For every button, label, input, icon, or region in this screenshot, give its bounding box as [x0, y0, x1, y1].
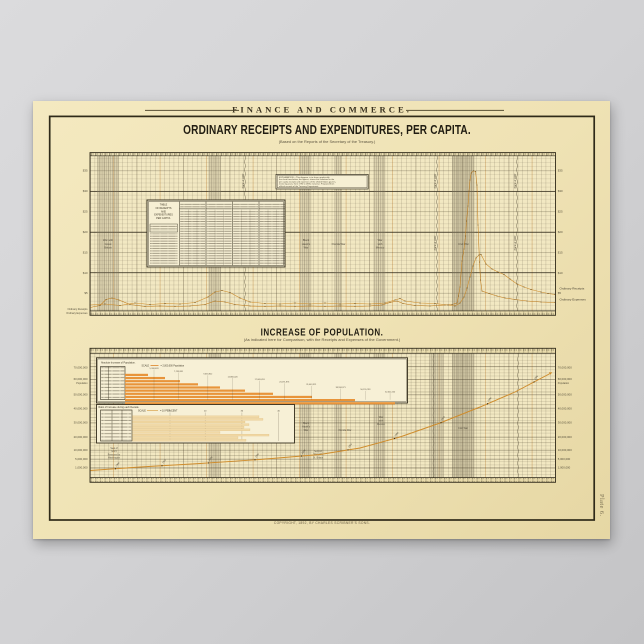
- svg-text:50,000,000: 50,000,000: [558, 393, 572, 397]
- svg-text:10,000,000: 10,000,000: [558, 448, 572, 452]
- svg-text:Panic of 1837: Panic of 1837: [242, 173, 245, 188]
- svg-text:62,622,250: 62,622,250: [385, 391, 396, 393]
- svg-text:Panic of 1837: Panic of 1837: [514, 235, 517, 250]
- svg-text:Panic of 1837: Panic of 1837: [434, 235, 437, 250]
- svg-text:70,000,000: 70,000,000: [558, 366, 572, 370]
- svg-text:38,558,371: 38,558,371: [336, 387, 347, 389]
- svg-text:20,000,000: 20,000,000: [74, 435, 88, 439]
- svg-text:= 2,000,000 Population: = 2,000,000 Population: [161, 364, 185, 367]
- svg-text:Black: Black: [303, 238, 310, 242]
- svg-text:$10: $10: [558, 271, 563, 275]
- svg-text:Second: Second: [314, 451, 323, 453]
- svg-text:PER CAPITA.: PER CAPITA.: [156, 217, 171, 220]
- svg-text:Removed to: Removed to: [108, 453, 121, 456]
- svg-text:(Based on the Reports of the S: (Based on the Reports of the Secretary o…: [279, 139, 376, 144]
- svg-text:$5: $5: [558, 291, 562, 295]
- svg-text:Population: Population: [76, 382, 88, 385]
- svg-text:$10: $10: [83, 271, 88, 275]
- svg-text:Mexico: Mexico: [376, 246, 385, 250]
- svg-text:Florida War: Florida War: [332, 242, 346, 246]
- svg-text:60,000,000: 60,000,000: [74, 377, 88, 381]
- svg-text:$25: $25: [83, 210, 88, 214]
- svg-text:Gov't: Gov't: [111, 450, 117, 453]
- svg-text:20,000,000: 20,000,000: [558, 435, 572, 439]
- svg-text:Ratio of Increase during each: Ratio of Increase during each Decade.: [99, 406, 140, 409]
- svg-text:50,000,000: 50,000,000: [74, 393, 88, 397]
- svg-text:5,308,483: 5,308,483: [150, 368, 160, 370]
- svg-text:$30: $30: [83, 189, 88, 193]
- svg-text:$30: $30: [558, 189, 563, 193]
- svg-text:40,000,000: 40,000,000: [558, 407, 572, 411]
- svg-text:1,000,000: 1,000,000: [558, 466, 571, 470]
- svg-text:50,155,783: 50,155,783: [360, 389, 371, 391]
- svg-text:12,866,020: 12,866,020: [228, 376, 239, 378]
- svg-text:30,000,000: 30,000,000: [558, 421, 572, 425]
- svg-text:Population: Population: [558, 382, 570, 385]
- svg-text:70,000,000: 70,000,000: [74, 366, 88, 370]
- svg-text:Florida War: Florida War: [339, 429, 352, 432]
- svg-text:9,633,822: 9,633,822: [203, 374, 213, 376]
- svg-text:31,443,321: 31,443,321: [306, 384, 317, 386]
- svg-text:(As indicated here for Compari: (As indicated here for Comparison, with …: [244, 337, 401, 342]
- svg-text:COPYRIGHT, 1892, BY CHARLES SC: COPYRIGHT, 1892, BY CHARLES SCRIBNER'S S…: [274, 521, 370, 525]
- svg-text:Panic of 1837: Panic of 1837: [434, 173, 437, 188]
- svg-text:with: with: [378, 242, 383, 246]
- svg-text:Plate 6.: Plate 6.: [598, 494, 605, 517]
- svg-text:Ordinary Receipts: Ordinary Receipts: [67, 308, 88, 311]
- svg-text:FINANCE AND COMMERCE.: FINANCE AND COMMERCE.: [232, 104, 412, 114]
- svg-text:$20: $20: [558, 230, 563, 234]
- svg-text:Ordinary Expenses: Ordinary Expenses: [560, 298, 587, 302]
- svg-text:Civil War: Civil War: [458, 427, 468, 430]
- svg-text:Ordinary Expenses: Ordinary Expenses: [66, 312, 88, 315]
- svg-text:60,000,000: 60,000,000: [558, 377, 572, 381]
- svg-text:$35: $35: [558, 169, 563, 173]
- svg-text:7,239,881: 7,239,881: [174, 371, 184, 373]
- svg-text:ORDINARY RECEIPTS AND EXPENDIT: ORDINARY RECEIPTS AND EXPENDITURES, PER …: [183, 124, 471, 137]
- svg-text:Ordinary Receipts: Ordinary Receipts: [560, 287, 585, 291]
- svg-text:23,191,876: 23,191,876: [279, 382, 290, 384]
- svg-text:SCALE: SCALE: [138, 409, 146, 412]
- svg-text:War: War: [304, 429, 309, 432]
- svg-text:Civil War: Civil War: [458, 242, 469, 246]
- svg-text:Washington: Washington: [108, 457, 121, 460]
- svg-text:War: War: [378, 238, 383, 242]
- svg-text:Great: Great: [105, 242, 112, 246]
- svg-text:Absolute Increase of Populatio: Absolute Increase of Population.: [101, 362, 136, 365]
- svg-text:Mexico: Mexico: [377, 423, 386, 426]
- svg-text:30,000,000: 30,000,000: [74, 421, 88, 425]
- svg-text:40,000,000: 40,000,000: [74, 407, 88, 411]
- svg-text:Gt. Britain: Gt. Britain: [313, 456, 324, 459]
- svg-text:War with: War with: [103, 238, 114, 242]
- svg-text:Seat of: Seat of: [110, 447, 118, 450]
- svg-text:$5: $5: [84, 291, 88, 295]
- svg-text:1,000,000: 1,000,000: [75, 466, 88, 470]
- svg-text:War: War: [304, 246, 309, 250]
- svg-text:official records of the Treasu: official records of the Treasury Departm…: [279, 185, 319, 188]
- svg-text:5,000,000: 5,000,000: [75, 457, 88, 461]
- svg-text:$15: $15: [83, 251, 88, 255]
- svg-text:Britain: Britain: [104, 246, 112, 250]
- svg-text:$25: $25: [558, 210, 563, 214]
- svg-text:5,000,000: 5,000,000: [558, 457, 571, 461]
- svg-text:Panic of 1837: Panic of 1837: [514, 173, 517, 188]
- svg-text:10,000,000: 10,000,000: [74, 448, 88, 452]
- svg-text:$15: $15: [558, 251, 563, 255]
- svg-text:$35: $35: [83, 169, 88, 173]
- svg-text:SCALE: SCALE: [142, 364, 150, 367]
- svg-text:Hawk's: Hawk's: [302, 242, 311, 246]
- svg-text:17,069,453: 17,069,453: [255, 379, 266, 381]
- svg-text:INCREASE OF POPULATION.: INCREASE OF POPULATION.: [261, 327, 384, 338]
- svg-text:$20: $20: [83, 230, 88, 234]
